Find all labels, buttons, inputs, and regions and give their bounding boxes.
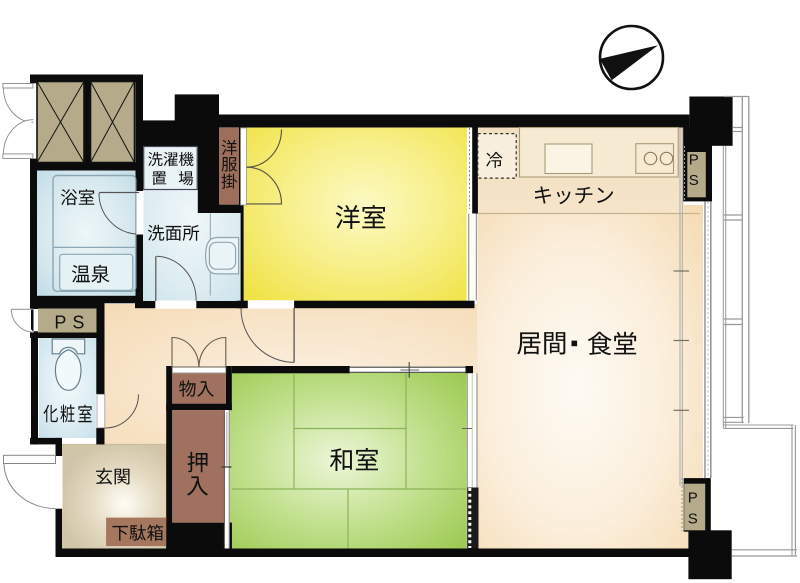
svg-text:S: S xyxy=(72,313,84,333)
svg-text:P: P xyxy=(54,313,66,333)
svg-text:S: S xyxy=(689,172,699,189)
svg-text:P: P xyxy=(688,489,698,506)
svg-text:P: P xyxy=(689,152,699,169)
svg-text:S: S xyxy=(688,510,698,527)
